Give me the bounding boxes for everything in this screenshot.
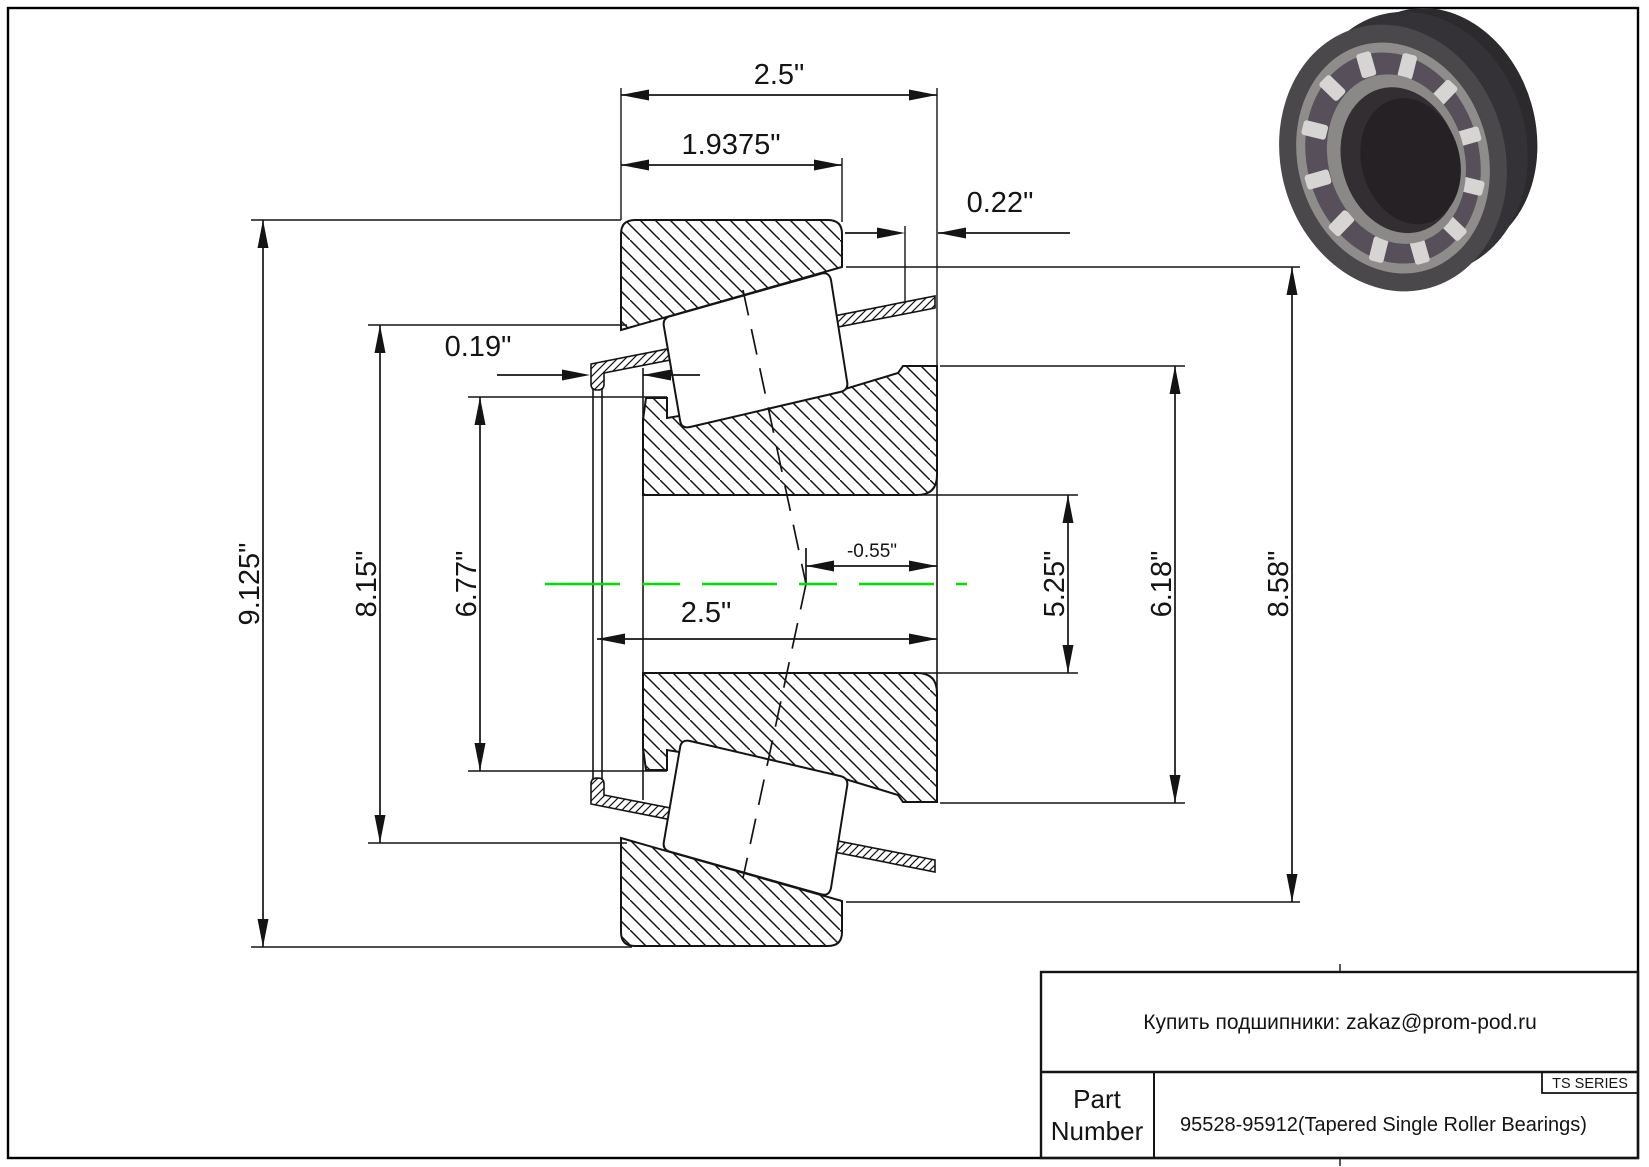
dim-cone-standout: [845, 226, 1070, 302]
bearing-3d-render: [1246, 0, 1572, 319]
dim-label-od-cup-small: 6.18": [1146, 551, 1178, 618]
bearing-drawing-canvas: 2.5" 1.9375" 0.22" 0.19" 9.125" 8.15" 6.…: [0, 0, 1649, 1167]
drawing-sheet: 2.5" 1.9375" 0.22" 0.19" 9.125" 8.15" 6.…: [0, 0, 1649, 1167]
dim-label-bore-width: 2.5": [681, 597, 732, 629]
dim-label-od-cup: 8.58": [1263, 551, 1295, 618]
dim-label-bore-diameter: 5.25": [1039, 551, 1071, 618]
dim-label-effective-center: -0.55": [847, 541, 897, 562]
dim-cup-width: [621, 158, 842, 222]
dim-label-cone-standout: 0.22": [967, 187, 1034, 219]
dim-label-od-flange: 8.15": [351, 551, 383, 618]
dim-label-od-cup-front: 6.77": [451, 551, 483, 618]
contact-text: Купить подшипники: zakaz@prom-pod.ru: [1143, 1011, 1537, 1034]
part-label-line1: Part: [1073, 1084, 1121, 1114]
dim-label-overall-width: 2.5": [754, 59, 805, 91]
dim-label-cup-width: 1.9375": [682, 129, 781, 161]
dim-bore-width: [597, 634, 937, 645]
series-badge: TS SERIES: [1552, 1076, 1628, 1092]
part-number: 95528-95912(Tapered Single Roller Bearin…: [1180, 1114, 1587, 1136]
dim-label-od-housing: 9.125": [234, 543, 266, 626]
part-label-line2: Number: [1051, 1116, 1144, 1146]
dim-label-cage-clearance: 0.19": [445, 331, 512, 363]
